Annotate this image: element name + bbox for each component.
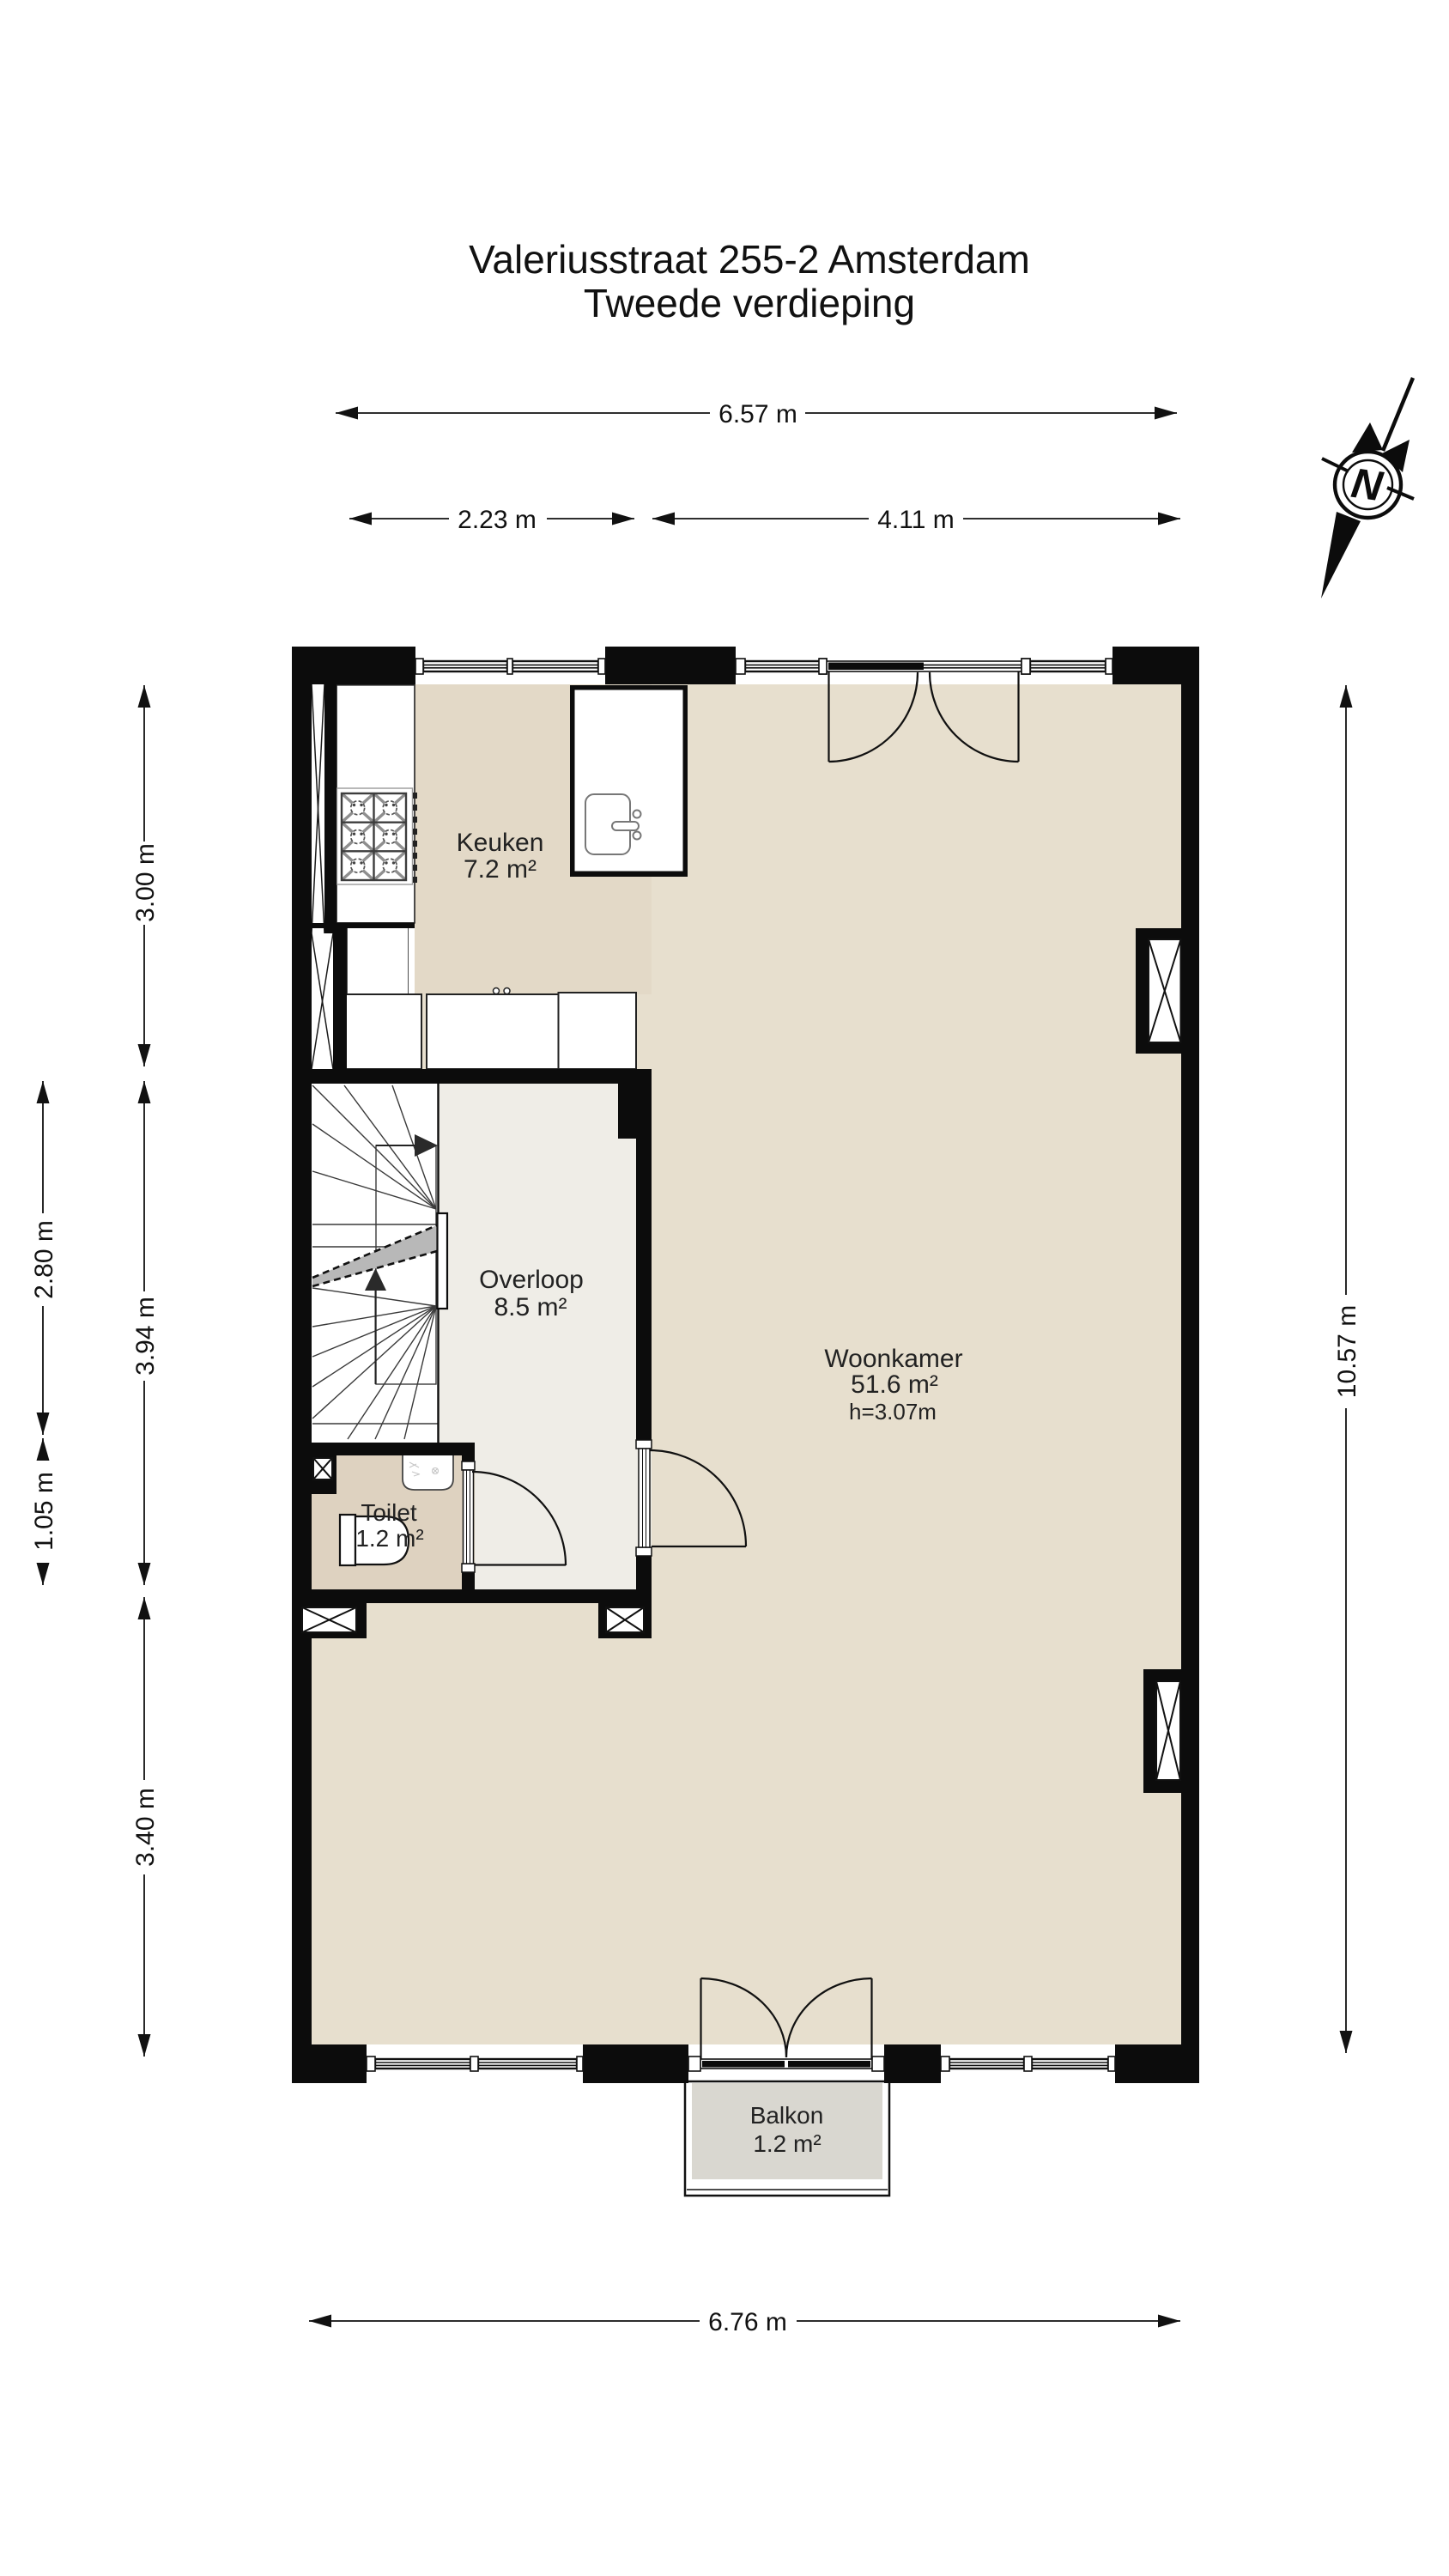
svg-text:7.2 m²: 7.2 m² — [464, 855, 537, 884]
svg-text:3.40 m: 3.40 m — [131, 1788, 160, 1867]
svg-text:Balkon: Balkon — [750, 2102, 824, 2129]
svg-text:4.11 m: 4.11 m — [877, 506, 955, 534]
svg-text:1.2 m²: 1.2 m² — [355, 1525, 423, 1552]
svg-text:10.57 m: 10.57 m — [1333, 1305, 1361, 1398]
svg-text:1.2 m²: 1.2 m² — [753, 2130, 821, 2157]
svg-text:Toilet: Toilet — [361, 1499, 417, 1526]
svg-text:Keuken: Keuken — [457, 829, 544, 857]
svg-text:6.57 m: 6.57 m — [718, 400, 797, 428]
svg-text:51.6 m²: 51.6 m² — [851, 1370, 938, 1399]
svg-text:8.5 m²: 8.5 m² — [494, 1293, 567, 1321]
svg-text:Overloop: Overloop — [479, 1266, 584, 1294]
svg-text:2.80 m: 2.80 m — [30, 1220, 58, 1299]
svg-text:Valeriusstraat 255-2 Amsterdam: Valeriusstraat 255-2 Amsterdam — [469, 237, 1030, 282]
svg-text:3.94 m: 3.94 m — [131, 1297, 160, 1376]
svg-text:6.76 m: 6.76 m — [708, 2308, 787, 2336]
svg-text:h=3.07m: h=3.07m — [849, 1399, 937, 1425]
svg-text:3.00 m: 3.00 m — [131, 843, 160, 922]
svg-text:2.23 m: 2.23 m — [458, 506, 537, 534]
svg-text:Tweede verdieping: Tweede verdieping — [584, 281, 915, 325]
svg-text:Woonkamer: Woonkamer — [824, 1345, 962, 1373]
svg-text:1.05 m: 1.05 m — [30, 1472, 58, 1551]
